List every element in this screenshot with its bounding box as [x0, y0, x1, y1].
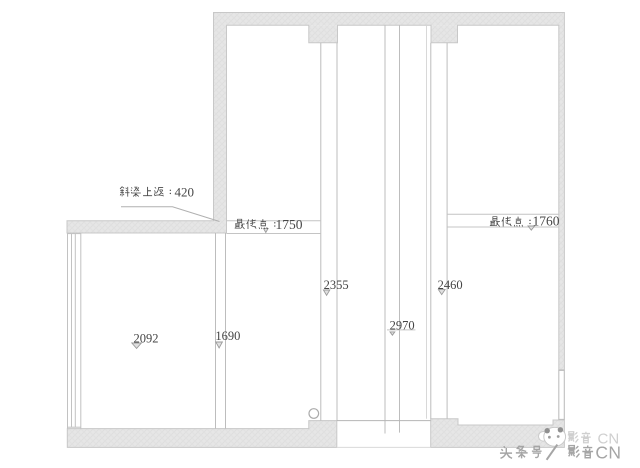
svg-text:420: 420: [175, 185, 195, 200]
svg-text:CN: CN: [595, 443, 621, 463]
svg-text:2970: 2970: [390, 318, 415, 332]
svg-text:2355: 2355: [324, 278, 349, 292]
svg-text:2460: 2460: [438, 278, 463, 292]
svg-text:1690: 1690: [215, 329, 240, 343]
svg-text:1750: 1750: [276, 217, 303, 232]
svg-text:2092: 2092: [134, 331, 159, 345]
svg-text:1760: 1760: [533, 214, 560, 229]
